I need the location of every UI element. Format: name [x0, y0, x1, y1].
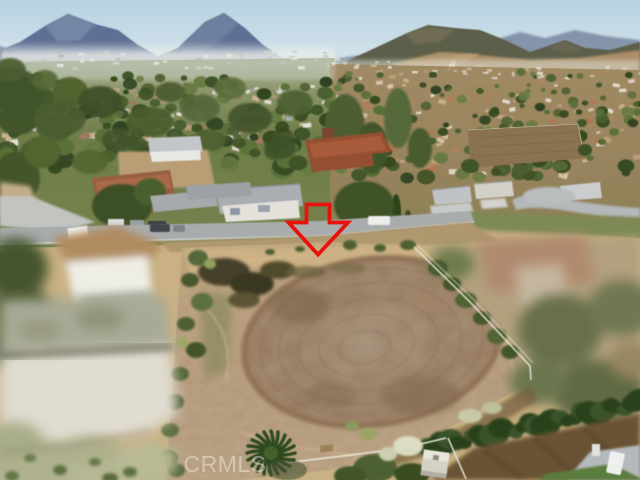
svg-text:CRMLS: CRMLS — [183, 451, 266, 477]
